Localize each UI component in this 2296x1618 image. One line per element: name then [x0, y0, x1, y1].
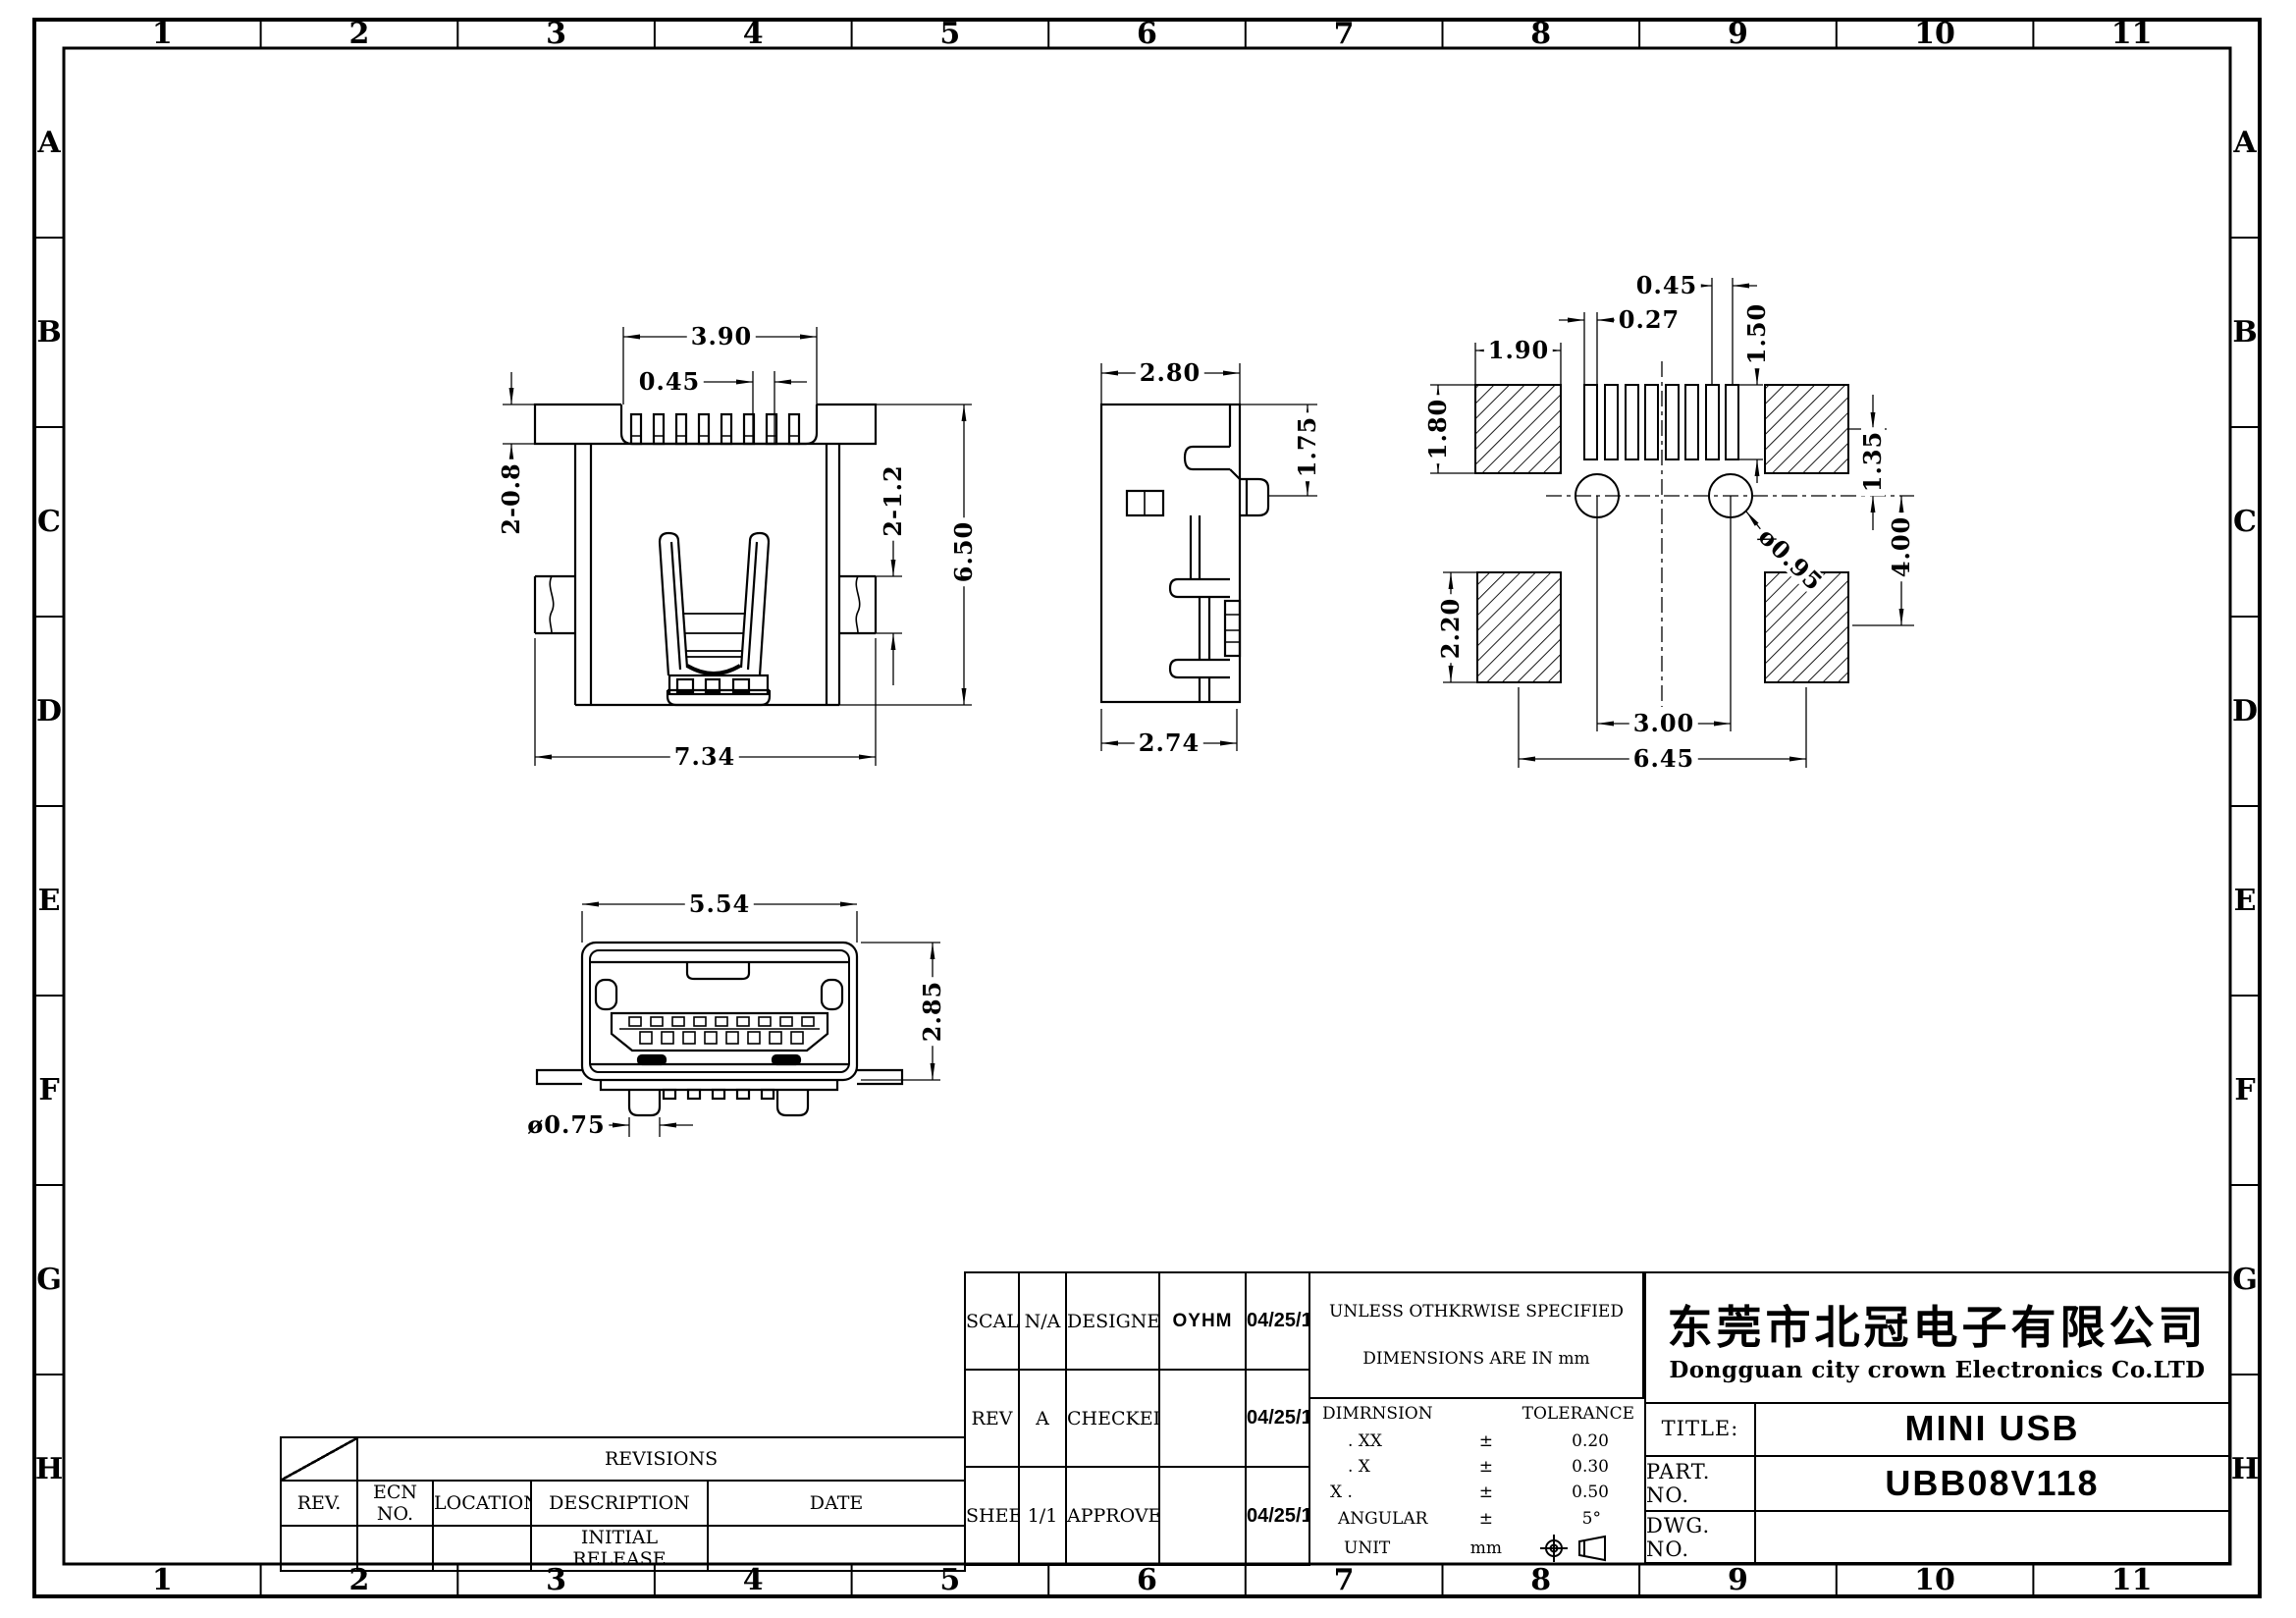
- dim-label-front-height: 2.85: [921, 977, 944, 1046]
- dim-label-top-width: 3.90: [687, 325, 756, 349]
- checked-value: [1159, 1370, 1246, 1467]
- dim-label-side-top-width: 2.80: [1136, 361, 1204, 385]
- dim-label-fp-pad2-height: 2.20: [1439, 594, 1463, 663]
- grid-col-label-bottom: 6: [1048, 1564, 1246, 1596]
- approve-value: [1159, 1467, 1246, 1565]
- designer-date: 04/25/11: [1246, 1272, 1309, 1370]
- checked-label: CHECKED: [1066, 1370, 1159, 1467]
- grid-col-label-bottom: 9: [1639, 1564, 1837, 1596]
- grid-col-label-top: 11: [2033, 20, 2230, 48]
- grid-row-label-left: H: [34, 1375, 64, 1564]
- title-label-cell: TITLE:: [1646, 1402, 1756, 1457]
- grid-col-label-top: 2: [261, 20, 458, 48]
- title-label: TITLE:: [1662, 1417, 1739, 1440]
- designer-value: OYHM: [1159, 1272, 1246, 1370]
- dim-label-fp-hole-offset: 1.35: [1861, 427, 1885, 496]
- tol-row-xx-sign: ±: [1463, 1429, 1510, 1454]
- dim-label-pin-pitch: 0.45: [635, 370, 704, 394]
- grid-col-label-top: 4: [655, 20, 852, 48]
- engineering-drawing-sheet: 3.90 0.45 2-0.8 2-1.2 6.50 7.34 2.80 1.7…: [0, 0, 2296, 1618]
- tol-row-whole-dim: X .: [1308, 1480, 1463, 1505]
- rev-label: REV: [965, 1370, 1019, 1467]
- grid-row-label-right: D: [2230, 617, 2260, 806]
- sheet-label: SHEET: [965, 1467, 1019, 1565]
- grid-row-label-left: F: [34, 996, 64, 1185]
- grid-col-label-top: 3: [457, 20, 655, 48]
- grid-col-label-bottom: 1: [64, 1564, 261, 1596]
- title-value-cell: MINI USB: [1756, 1402, 2228, 1457]
- grid-col-label-bottom: 7: [1246, 1564, 1443, 1596]
- top-view-dimensions: [503, 327, 972, 766]
- dim-label-fp-span-vertical: 4.00: [1890, 512, 1913, 581]
- checked-date: 04/25/11: [1246, 1370, 1309, 1467]
- spec-note-line1: UNLESS OTHKRWISE SPECIFIED: [1329, 1302, 1624, 1321]
- scale-label: SCALE: [965, 1272, 1019, 1370]
- grid-row-label-left: B: [34, 238, 64, 427]
- side-view-geometry: [1101, 404, 1268, 702]
- grid-col-label-bottom: 11: [2033, 1564, 2230, 1596]
- grid-col-label-bottom: 5: [852, 1564, 1049, 1596]
- grid-row-label-right: E: [2230, 806, 2260, 996]
- grid-col-label-top: 8: [1442, 20, 1639, 48]
- tol-row-unit-label: UNIT: [1308, 1533, 1463, 1564]
- tol-row-angular-sign: ±: [1463, 1505, 1510, 1533]
- dim-label-fp-slot-length: 1.50: [1745, 299, 1769, 368]
- company-name-en: Dongguan city crown Electronics Co.LTD: [1669, 1357, 2205, 1383]
- grid-col-label-top: 7: [1246, 20, 1443, 48]
- revisions-header-rev: REV.: [281, 1481, 357, 1526]
- dim-label-front-leg-dia: ø0.75: [523, 1113, 609, 1137]
- scale-value: N/A: [1019, 1272, 1066, 1370]
- revisions-header-ecn: ECN NO.: [357, 1481, 433, 1526]
- dwg-value-cell: [1756, 1512, 2228, 1562]
- front-view-contacts: [619, 1017, 820, 1044]
- grid-col-label-top: 1: [64, 20, 261, 48]
- front-view-dimensions: [582, 904, 940, 1137]
- tol-row-whole-value: 0.50: [1510, 1480, 1644, 1505]
- tol-row-angular-value: 5°: [1510, 1505, 1644, 1533]
- part-value-cell: UBB08V118: [1756, 1457, 2228, 1512]
- grid-col-label-top: 6: [1048, 20, 1246, 48]
- tol-row-x-sign: ±: [1463, 1454, 1510, 1480]
- tol-row-unit-symbol-cell: [1510, 1533, 1644, 1564]
- front-view-geometry: [537, 943, 902, 1115]
- third-angle-projection-icon: [1538, 1534, 1615, 1563]
- dim-label-fp-pad-span: 6.45: [1629, 747, 1698, 771]
- dim-label-fp-slot-width: 0.27: [1615, 308, 1683, 332]
- grid-row-label-right: G: [2230, 1185, 2260, 1375]
- grid-row-label-left: D: [34, 617, 64, 806]
- dim-label-fp-pad-height: 1.80: [1426, 395, 1450, 463]
- revisions-table: REVISIONS REV. ECN NO. LOCATION DESCRIPT…: [280, 1436, 966, 1572]
- grid-row-label-right: C: [2230, 427, 2260, 617]
- grid-row-label-right: F: [2230, 996, 2260, 1185]
- spec-note-line2: DIMENSIONS ARE IN mm: [1362, 1349, 1589, 1369]
- revisions-title: REVISIONS: [357, 1437, 965, 1481]
- dim-label-side-bottom-width: 2.74: [1135, 731, 1203, 755]
- grid-row-label-left: E: [34, 806, 64, 996]
- part-number: UBB08V118: [1885, 1463, 2099, 1504]
- dim-label-bottom-width: 7.34: [670, 745, 739, 769]
- tol-row-x-dim: . X: [1308, 1454, 1463, 1480]
- top-view-spring: [660, 533, 770, 705]
- grid-col-label-bottom: 8: [1442, 1564, 1639, 1596]
- revisions-diagonal-cell: [281, 1437, 357, 1481]
- tol-row-xx-dim: . XX: [1308, 1429, 1463, 1454]
- dwg-number-label: DWG. NO.: [1646, 1514, 1754, 1561]
- revisions-header-date: DATE: [708, 1481, 965, 1526]
- approve-label: APPROVE: [1066, 1467, 1159, 1565]
- dim-label-side-pin-height: 1.75: [1296, 412, 1319, 481]
- dim-label-fp-hole-pitch: 3.00: [1629, 712, 1698, 735]
- footprint-geometry: [1475, 361, 1914, 731]
- grid-col-label-bottom: 4: [655, 1564, 852, 1596]
- tol-row-angular-dim: ANGULAR: [1308, 1505, 1463, 1533]
- company-name-box: 东莞市北冠电子有限公司 Dongguan city crown Electron…: [1646, 1273, 2228, 1404]
- grid-col-label-bottom: 10: [1837, 1564, 2034, 1596]
- revisions-header-description: DESCRIPTION: [531, 1481, 708, 1526]
- tolerance-dim-header: DIMRNSION: [1308, 1399, 1463, 1429]
- tol-row-x-value: 0.30: [1510, 1454, 1644, 1480]
- revisions-header-location: LOCATION: [433, 1481, 531, 1526]
- part-number-label: PART. NO.: [1646, 1460, 1754, 1507]
- grid-row-label-left: A: [34, 48, 64, 238]
- grid-row-label-right: B: [2230, 238, 2260, 427]
- rev-value: A: [1019, 1370, 1066, 1467]
- title-block-info-table: SCALE N/A DESIGNER OYHM 04/25/11 REV A C…: [964, 1271, 1310, 1566]
- grid-col-label-bottom: 3: [457, 1564, 655, 1596]
- grid-col-label-top: 5: [852, 20, 1049, 48]
- dim-label-front-width: 5.54: [685, 892, 754, 916]
- tol-row-xx-value: 0.20: [1510, 1429, 1644, 1454]
- approve-date: 04/25/11: [1246, 1467, 1309, 1565]
- company-panel: 东莞市北冠电子有限公司 Dongguan city crown Electron…: [1644, 1271, 2230, 1564]
- grid-row-label-left: G: [34, 1185, 64, 1375]
- spec-note-box: UNLESS OTHKRWISE SPECIFIED DIMENSIONS AR…: [1308, 1271, 1644, 1399]
- tolerance-table: DIMRNSION TOLERANCE . XX ± 0.20 . X ± 0.…: [1308, 1399, 1644, 1564]
- dwg-label-cell: DWG. NO.: [1646, 1512, 1756, 1562]
- designer-label: DESIGNER: [1066, 1272, 1159, 1370]
- tolerance-tol-header: TOLERANCE: [1510, 1399, 1644, 1429]
- part-label-cell: PART. NO.: [1646, 1457, 1756, 1512]
- drawing-title: MINI USB: [1905, 1408, 2080, 1449]
- tol-row-whole-sign: ±: [1463, 1480, 1510, 1505]
- grid-col-label-bottom: 2: [261, 1564, 458, 1596]
- grid-row-label-left: C: [34, 427, 64, 617]
- dim-label-fp-pad-pitch: 0.45: [1632, 274, 1701, 297]
- dim-label-fp-pad-width: 1.90: [1484, 339, 1553, 362]
- sheet-value: 1/1: [1019, 1467, 1066, 1565]
- grid-row-label-right: A: [2230, 48, 2260, 238]
- dim-label-body-height: 6.50: [952, 517, 976, 586]
- top-view-geometry: [535, 404, 876, 705]
- company-name-cn: 东莞市北冠电子有限公司: [1668, 1292, 2208, 1357]
- grid-col-label-top: 10: [1837, 20, 2034, 48]
- title-block: SCALE N/A DESIGNER OYHM 04/25/11 REV A C…: [964, 1271, 2230, 1564]
- grid-row-label-right: H: [2230, 1375, 2260, 1564]
- dim-label-slot-right: 2-1.2: [881, 460, 905, 540]
- dim-label-slot-left: 2-0.8: [500, 458, 523, 538]
- tol-row-unit-value: mm: [1463, 1533, 1510, 1564]
- grid-col-label-top: 9: [1639, 20, 1837, 48]
